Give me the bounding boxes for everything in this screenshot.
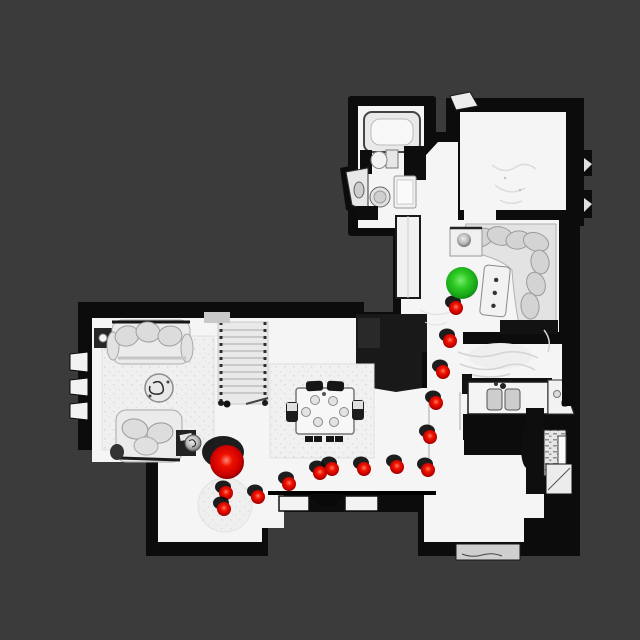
chair bbox=[306, 381, 324, 392]
waypoint-dot bbox=[357, 462, 371, 476]
window-bench bbox=[279, 496, 309, 511]
waypoint-dot bbox=[429, 396, 443, 410]
waypoint-dot bbox=[251, 490, 265, 504]
room-dining bbox=[270, 364, 374, 458]
waypoint-dot bbox=[282, 477, 296, 491]
gray-decor-ball bbox=[457, 233, 471, 247]
toilet-bowl bbox=[371, 152, 387, 169]
waypoint-dot bbox=[313, 466, 327, 480]
toilet-tank bbox=[386, 150, 398, 168]
sink-right bbox=[505, 389, 520, 410]
waypoint-dot bbox=[217, 502, 231, 516]
porch-step bbox=[456, 544, 520, 560]
sink-left bbox=[487, 389, 502, 410]
bathtub-basin bbox=[371, 119, 413, 145]
waypoint-dot bbox=[443, 334, 457, 348]
chair bbox=[327, 381, 345, 392]
faucet bbox=[500, 383, 506, 389]
coffee-table bbox=[145, 374, 173, 402]
sofa-top bbox=[107, 320, 193, 364]
waypoint-dot bbox=[325, 462, 339, 476]
staircase bbox=[218, 322, 268, 408]
bed-frame bbox=[500, 320, 558, 334]
waypoint-dot bbox=[423, 430, 437, 444]
waypoint-dot bbox=[421, 463, 435, 477]
floorplan-svg bbox=[0, 0, 640, 640]
newel-post bbox=[224, 401, 231, 408]
goal-marker bbox=[446, 267, 478, 299]
window-bench bbox=[345, 496, 378, 511]
scan-viewport bbox=[0, 0, 640, 640]
waypoint-dot bbox=[390, 460, 404, 474]
sofa-bottom bbox=[110, 410, 182, 462]
bench-with-dots bbox=[479, 265, 510, 317]
waypoint-dot bbox=[436, 365, 450, 379]
spiral-ball bbox=[185, 435, 201, 451]
waypoint-dot bbox=[449, 301, 463, 315]
start-marker bbox=[210, 445, 244, 479]
window-sills bbox=[70, 352, 88, 420]
